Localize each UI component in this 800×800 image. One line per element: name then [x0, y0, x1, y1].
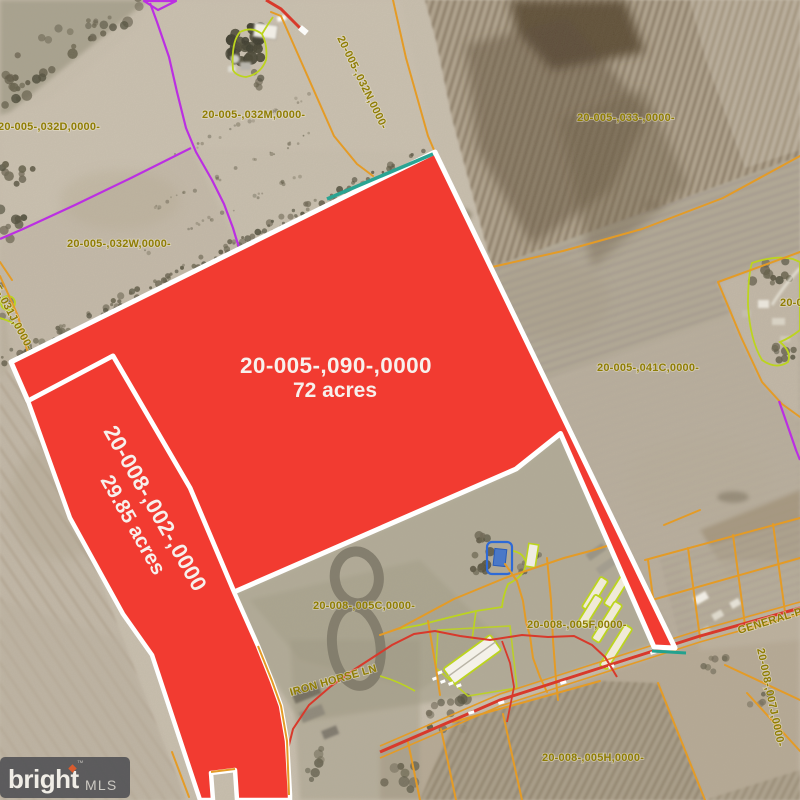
svg-text:20-005-,090-,0000: 20-005-,090-,0000: [240, 353, 432, 378]
svg-text:72 acres: 72 acres: [293, 379, 377, 402]
svg-text:20-005-,041C,0000-: 20-005-,041C,0000-: [597, 362, 699, 374]
svg-text:20-008-,005C,0000-: 20-008-,005C,0000-: [313, 600, 415, 612]
svg-text:™: ™: [77, 760, 84, 767]
svg-text:MLS: MLS: [85, 777, 117, 793]
svg-text:20-008-,005F,0000-: 20-008-,005F,0000-: [527, 619, 627, 631]
svg-text:20-005-,032W,0000-: 20-005-,032W,0000-: [67, 238, 171, 250]
svg-text:20-005-,033-,0000-: 20-005-,033-,0000-: [577, 112, 675, 124]
svg-text:20-005-,032M,0000-: 20-005-,032M,0000-: [202, 109, 305, 121]
svg-text:20-005-,032D,0000-: 20-005-,032D,0000-: [0, 121, 100, 133]
svg-text:20-008-,005H,0000-: 20-008-,005H,0000-: [542, 752, 644, 764]
svg-text:20-0: 20-0: [780, 297, 800, 309]
